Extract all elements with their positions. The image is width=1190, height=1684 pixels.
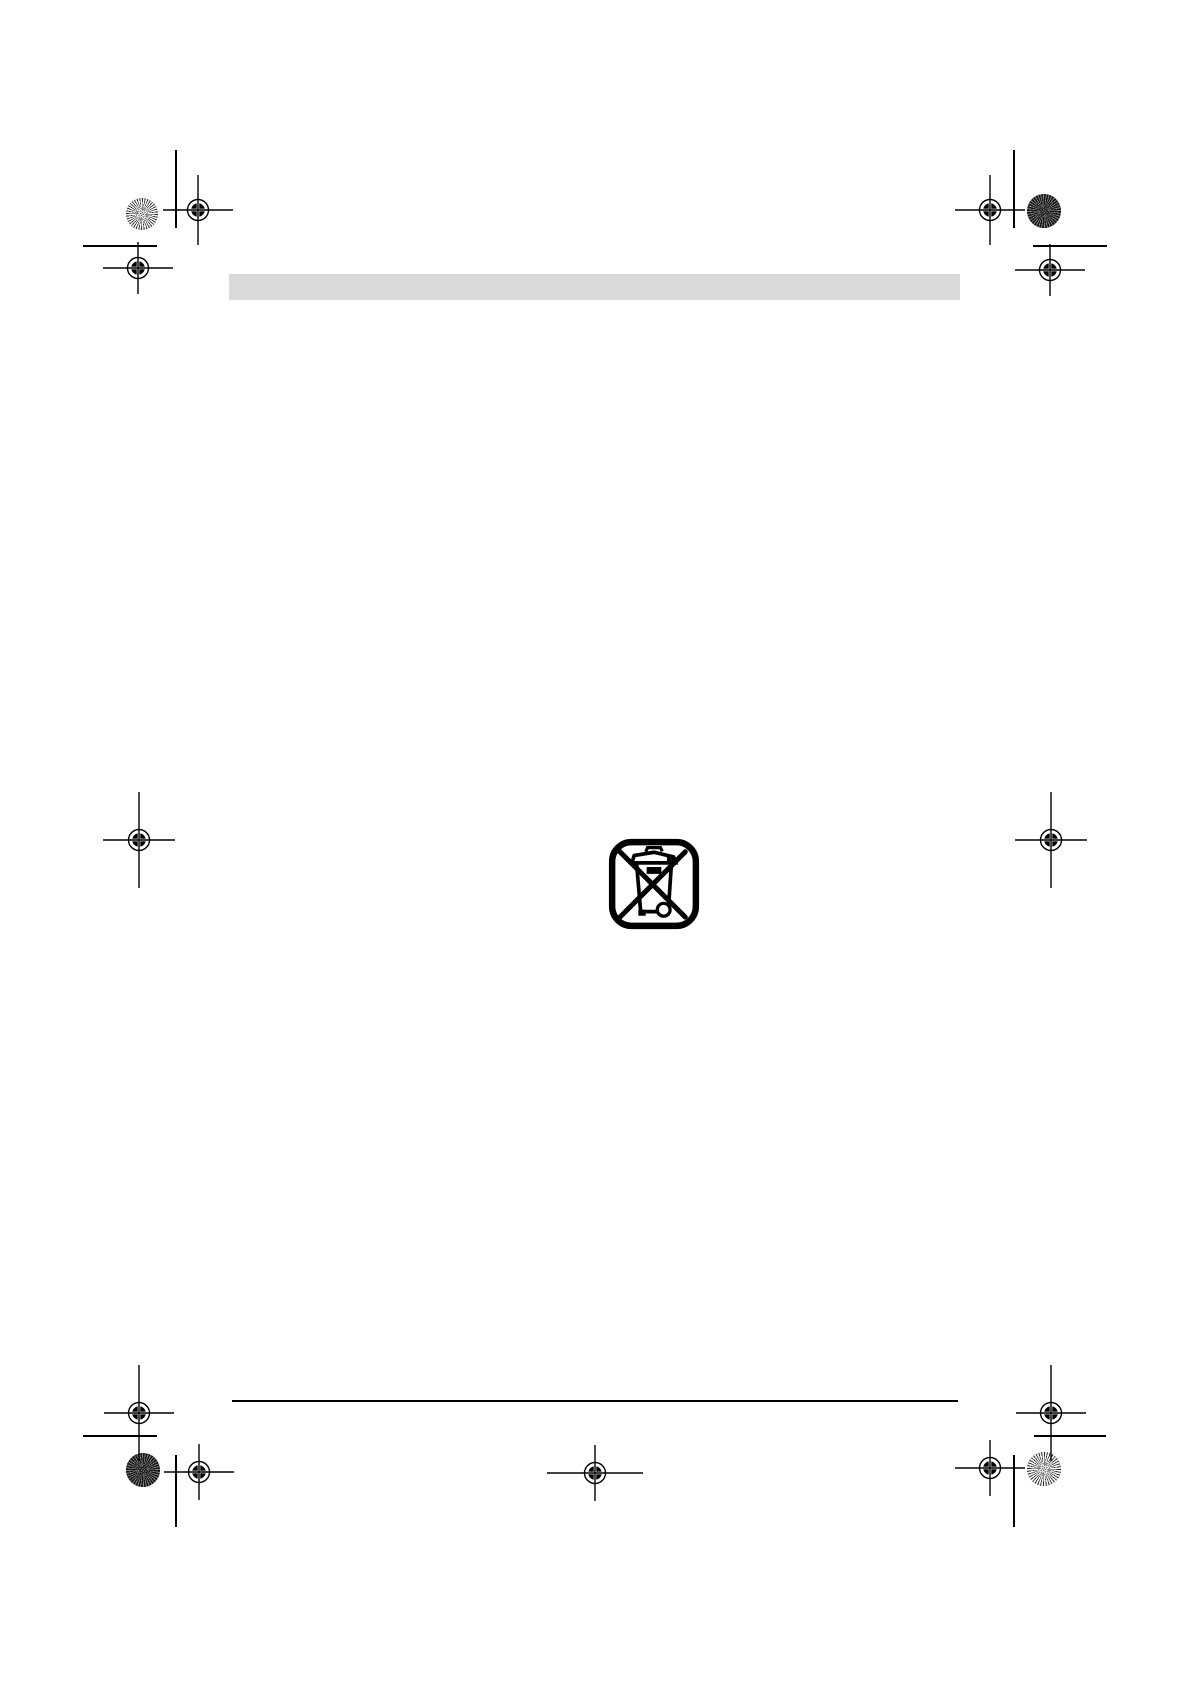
- bin-wheel-icon: [657, 903, 670, 916]
- registration-mark-icon-middle-left: [101, 790, 177, 890]
- printer-marks-layer: [0, 0, 1190, 1684]
- registration-mark-icon-top-right-inner: [953, 173, 1027, 247]
- registration-mark-icon-middle-right: [1013, 790, 1089, 890]
- footer-rule: [232, 1400, 958, 1402]
- star-target-icon-top-right: [1027, 194, 1061, 228]
- registration-mark-icon-top-right-outer: [1013, 242, 1087, 298]
- star-target-icon-top-left: [126, 198, 158, 230]
- registration-mark-icon-bottom-left-inner: [162, 1442, 236, 1502]
- registration-mark-icon-bottom-center: [545, 1443, 645, 1503]
- registration-mark-icon-top-left-outer: [101, 240, 175, 296]
- registration-mark-icon-top-left-inner: [161, 173, 235, 247]
- registration-mark-icon-bottom-right-inner: [953, 1438, 1027, 1498]
- weee-crossed-out-bin-icon: [608, 838, 700, 930]
- document-page: [0, 0, 1190, 1684]
